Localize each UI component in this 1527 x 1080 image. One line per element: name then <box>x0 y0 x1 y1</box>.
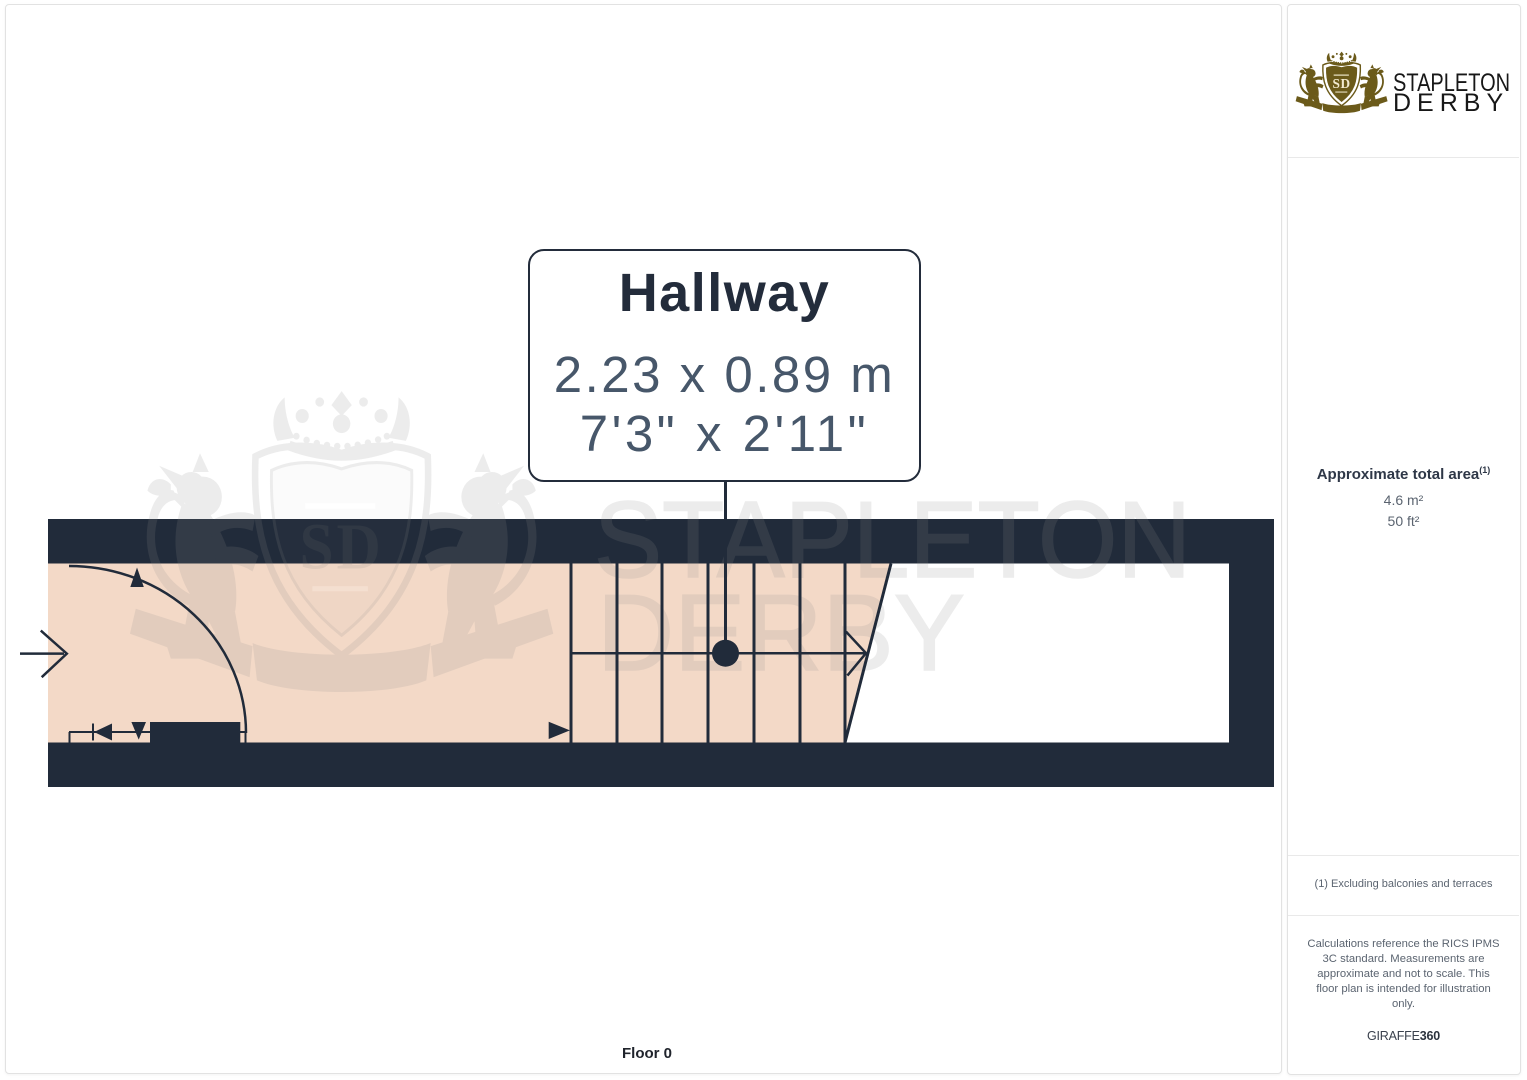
svg-text:DERBY: DERBY <box>597 572 965 694</box>
